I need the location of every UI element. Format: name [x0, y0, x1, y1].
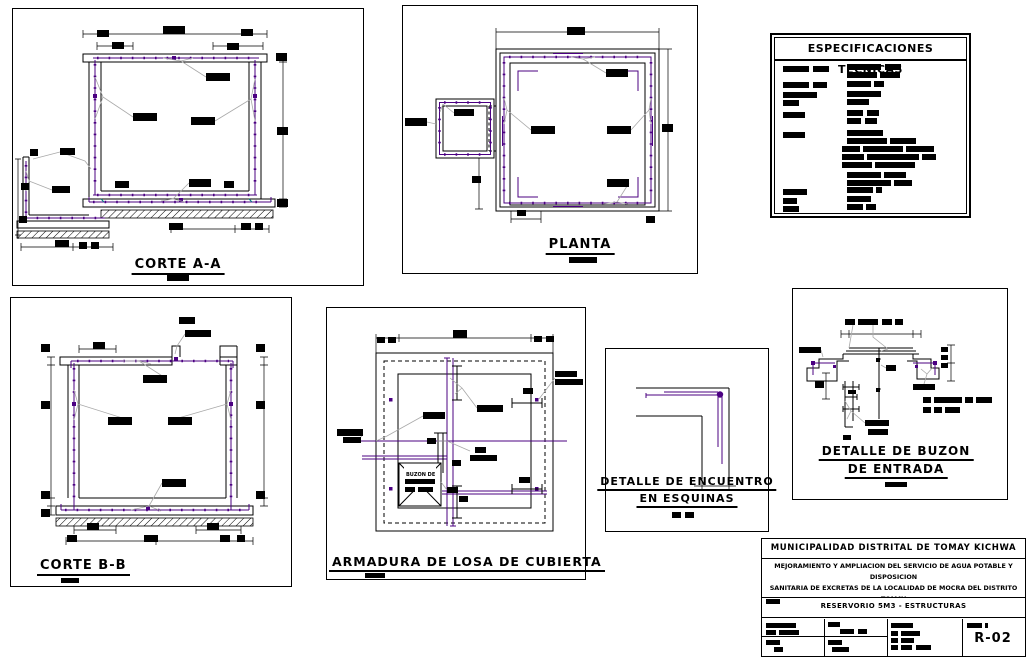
redacted-labels	[337, 330, 583, 502]
redacted-text	[828, 622, 840, 627]
ground-hatch	[56, 518, 253, 526]
redacted-text	[774, 647, 783, 652]
redacted-text	[916, 645, 931, 650]
rebar-lines	[21, 56, 271, 218]
redacted-text	[901, 631, 920, 636]
rebar-lines	[646, 391, 723, 464]
corte-aa-drawing	[13, 9, 363, 285]
spec-title: ESPECIFICACIONES TECNICAS	[775, 38, 966, 61]
redacted-labels	[405, 27, 673, 223]
redacted-text	[858, 629, 867, 634]
plan-name-row: RESERVORIO 5M3 - ESTRUCTURAS	[762, 596, 1025, 618]
grid-cell-sheet-number: R-02	[962, 619, 1024, 656]
encuentro-title-line1: DETALLE DE ENCUENTRO	[597, 475, 776, 491]
scale-annotation	[672, 512, 681, 518]
redacted-text	[766, 640, 780, 645]
armadura-drawing: BUZON DE	[327, 308, 585, 579]
signature-grid: R-02	[762, 619, 1025, 656]
redacted-text	[828, 640, 842, 645]
leader-lines	[821, 325, 933, 423]
drawing-sheet: CORTE A-A	[0, 0, 1032, 662]
planta-drawing	[403, 6, 697, 273]
redacted-text	[766, 623, 796, 628]
cell-divider	[824, 636, 887, 637]
redacted-text	[766, 630, 776, 635]
redacted-text	[840, 629, 854, 634]
scale-annotation	[685, 512, 694, 518]
redacted-text	[832, 647, 849, 652]
corner-walls	[636, 388, 729, 479]
panel-armadura: BUZON DE	[326, 307, 586, 580]
buzon-title-line2: DE ENTRADA	[845, 462, 948, 479]
panel-corte-aa: CORTE A-A	[12, 8, 364, 286]
municipality-name: MUNICIPALIDAD DISTRITAL DE TOMAY KICHWA	[771, 543, 1017, 553]
planta-title: PLANTA	[546, 237, 615, 255]
buzon-title-line1: DETALLE DE BUZON	[819, 444, 974, 461]
redacted-text	[891, 623, 913, 628]
scale-annotation	[167, 275, 189, 281]
encuentro-title-line2: EN ESQUINAS	[636, 492, 737, 508]
spec-inner-border: ESPECIFICACIONES TECNICAS	[774, 37, 967, 214]
corte-aa-title: CORTE A-A	[132, 257, 225, 275]
redacted-text	[967, 623, 982, 628]
scale-annotation	[885, 482, 907, 487]
scale-annotation	[61, 578, 79, 583]
title-block: MUNICIPALIDAD DISTRITAL DE TOMAY KICHWA …	[761, 538, 1026, 657]
redacted-text	[891, 631, 898, 636]
project-row: MEJORAMIENTO Y AMPLIACION DEL SERVICIO D…	[762, 559, 1025, 598]
scale-annotation	[365, 573, 385, 578]
panel-buzon: DETALLE DE BUZON DE ENTRADA	[792, 288, 1008, 500]
redacted-labels	[799, 319, 992, 440]
spec-redacted-text	[775, 61, 966, 213]
scale-annotation	[569, 257, 597, 263]
plan-name: RESERVORIO 5M3 - ESTRUCTURAS	[762, 602, 1025, 610]
sheet-number: R-02	[962, 631, 1024, 646]
redacted-text	[891, 638, 898, 643]
spec-rows	[783, 64, 936, 212]
corte-bb-drawing	[11, 298, 291, 586]
armadura-title: ARMADURA DE LOSA DE CUBIERTA	[329, 554, 605, 572]
panel-encuentro: DETALLE DE ENCUENTRO EN ESQUINAS	[605, 348, 769, 532]
grid-cell-1	[762, 619, 825, 656]
redacted-text	[901, 638, 914, 643]
buzon-opening: BUZON DE	[399, 463, 441, 506]
project-line1: MEJORAMIENTO Y AMPLIACION DEL SERVICIO D…	[762, 561, 1025, 583]
redacted-text	[779, 630, 799, 635]
grid-cell-3	[887, 619, 963, 656]
panel-planta: PLANTA	[402, 5, 698, 274]
redacted-text	[901, 645, 912, 650]
municipality-row: MUNICIPALIDAD DISTRITAL DE TOMAY KICHWA	[762, 539, 1025, 559]
panel-corte-bb: CORTE B-B	[10, 297, 292, 587]
cell-divider	[762, 636, 824, 637]
redacted-text	[891, 645, 898, 650]
redacted-text	[985, 623, 988, 628]
panel-especificaciones: ESPECIFICACIONES TECNICAS	[770, 33, 971, 218]
corte-bb-title: CORTE B-B	[37, 558, 130, 576]
buzon-opening-label: BUZON DE	[406, 472, 436, 478]
grid-cell-2	[824, 619, 888, 656]
